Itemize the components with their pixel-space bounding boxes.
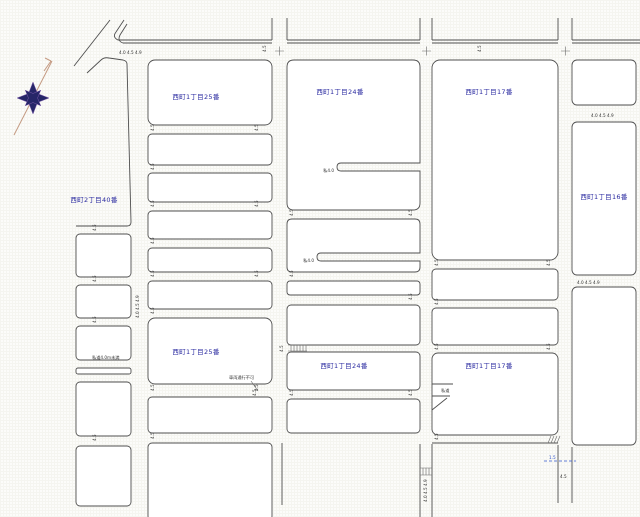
- dimension-label: 私4.0: [303, 257, 314, 264]
- city-block: [432, 308, 558, 345]
- dimension-label: 4.5: [150, 432, 155, 439]
- dimension-label: 4.0 4.5 4.9: [135, 295, 140, 318]
- city-block: [287, 399, 420, 433]
- dimension-label: 4.5: [92, 275, 97, 282]
- arterial-road: [114, 18, 640, 56]
- dimension-label: 4.5: [254, 270, 259, 277]
- dimension-label: 4.5: [434, 259, 439, 266]
- city-block: [148, 281, 272, 309]
- block-label: 西町1丁目24番: [320, 362, 368, 370]
- arterial-road-line: [114, 20, 640, 43]
- dimension-label: 車両通行不可: [229, 374, 254, 381]
- dimension-label: 4.5: [92, 224, 97, 231]
- city-block: [432, 269, 558, 300]
- hatch-marks: [420, 468, 432, 475]
- right-column-blocks: [432, 60, 558, 435]
- city-block: [148, 443, 272, 517]
- block-label: 西町1丁目24番: [316, 88, 364, 96]
- compass-rose-icon: [14, 58, 52, 135]
- city-block: [76, 285, 131, 318]
- city-block: [76, 234, 131, 277]
- block-label: 西町1丁目17番: [465, 88, 513, 96]
- dimension-label: 4.5: [279, 345, 284, 352]
- city-block: [148, 173, 272, 202]
- city-block: [287, 60, 420, 210]
- dimension-label: 私道: [441, 387, 450, 394]
- dimension-label: 1.5: [549, 455, 556, 460]
- dimension-label: 4.0 4.5 4.9: [577, 280, 600, 285]
- dimension-label: 4.5: [546, 259, 551, 266]
- city-block: [76, 368, 131, 374]
- block-label: 西町1丁目16番: [580, 193, 628, 201]
- dimension-label: 4.5: [477, 45, 482, 52]
- dimension-label: 4.5: [150, 384, 155, 391]
- dimension-label: 4.5: [150, 237, 155, 244]
- dimension-label: 4.0 4.5 4.9: [119, 50, 142, 55]
- dimension-label: 4.5: [262, 45, 267, 52]
- dimension-label: 4.5: [408, 293, 413, 300]
- block-label: 西町1丁目25番: [172, 93, 220, 101]
- city-block: [287, 281, 420, 295]
- city-block: [572, 287, 636, 445]
- dimension-label: 4.5: [150, 307, 155, 314]
- dimension-label: 4.5: [150, 124, 155, 131]
- dimension-label: 私4.0: [323, 167, 334, 174]
- dimension-label: 4.5: [150, 270, 155, 277]
- dimension-label: 4.5: [254, 124, 259, 131]
- dimension-label: 4.5: [289, 209, 294, 216]
- dimension-label: 4.0 4.5 4.9: [591, 113, 614, 118]
- dimension-label: 4.5: [150, 200, 155, 207]
- hatch-marks: [288, 345, 307, 351]
- city-block: [148, 248, 272, 272]
- city-block: [148, 397, 272, 433]
- city-block: [287, 352, 420, 390]
- middle-column-blocks: [287, 60, 420, 433]
- dimension-label: 4.5: [434, 433, 439, 440]
- dimension-label: 4.5: [434, 298, 439, 305]
- dimension-label: 4.5: [254, 200, 259, 207]
- dimension-label: 4.5: [92, 434, 97, 441]
- city-block: [287, 305, 420, 345]
- dimension-label: 私道4.0m未満: [92, 354, 120, 361]
- dimension-label: 4.5: [289, 270, 294, 277]
- city-block: [287, 219, 420, 272]
- north-stub-streets: [272, 18, 572, 40]
- hatch-marks: [548, 436, 560, 443]
- city-block: [148, 134, 272, 165]
- city-block: [148, 211, 272, 239]
- block-label: 西町1丁目17番: [465, 362, 513, 370]
- block-label: 西町2丁目40番: [70, 196, 118, 204]
- dimension-label: 4.0 4.5 4.9: [423, 479, 428, 502]
- dimension-label: 4.5: [408, 389, 413, 396]
- cadastral-map: 西町1丁目25番西町1丁目24番西町1丁目17番西町2丁目40番西町1丁目16番…: [0, 0, 640, 517]
- city-block: [76, 382, 131, 436]
- dimension-label: 4.5: [92, 316, 97, 323]
- dimension-label: 4.5: [434, 343, 439, 350]
- dimension-label: 4.5: [408, 209, 413, 216]
- block-label: 西町1丁目25番: [172, 348, 220, 356]
- dimension-label: 4.5: [289, 389, 294, 396]
- west-blocks: [76, 234, 131, 506]
- junction-cross-marks: [275, 47, 570, 56]
- dimension-label: 4.5: [546, 343, 551, 350]
- city-block: [76, 446, 131, 506]
- dimension-label: 4.5: [560, 474, 567, 479]
- dimension-label: 4.5: [150, 163, 155, 170]
- map-viewport: 西町1丁目25番西町1丁目24番西町1丁目17番西町2丁目40番西町1丁目16番…: [0, 0, 640, 517]
- city-block: [572, 60, 636, 105]
- dimension-label: 4.5: [254, 384, 259, 391]
